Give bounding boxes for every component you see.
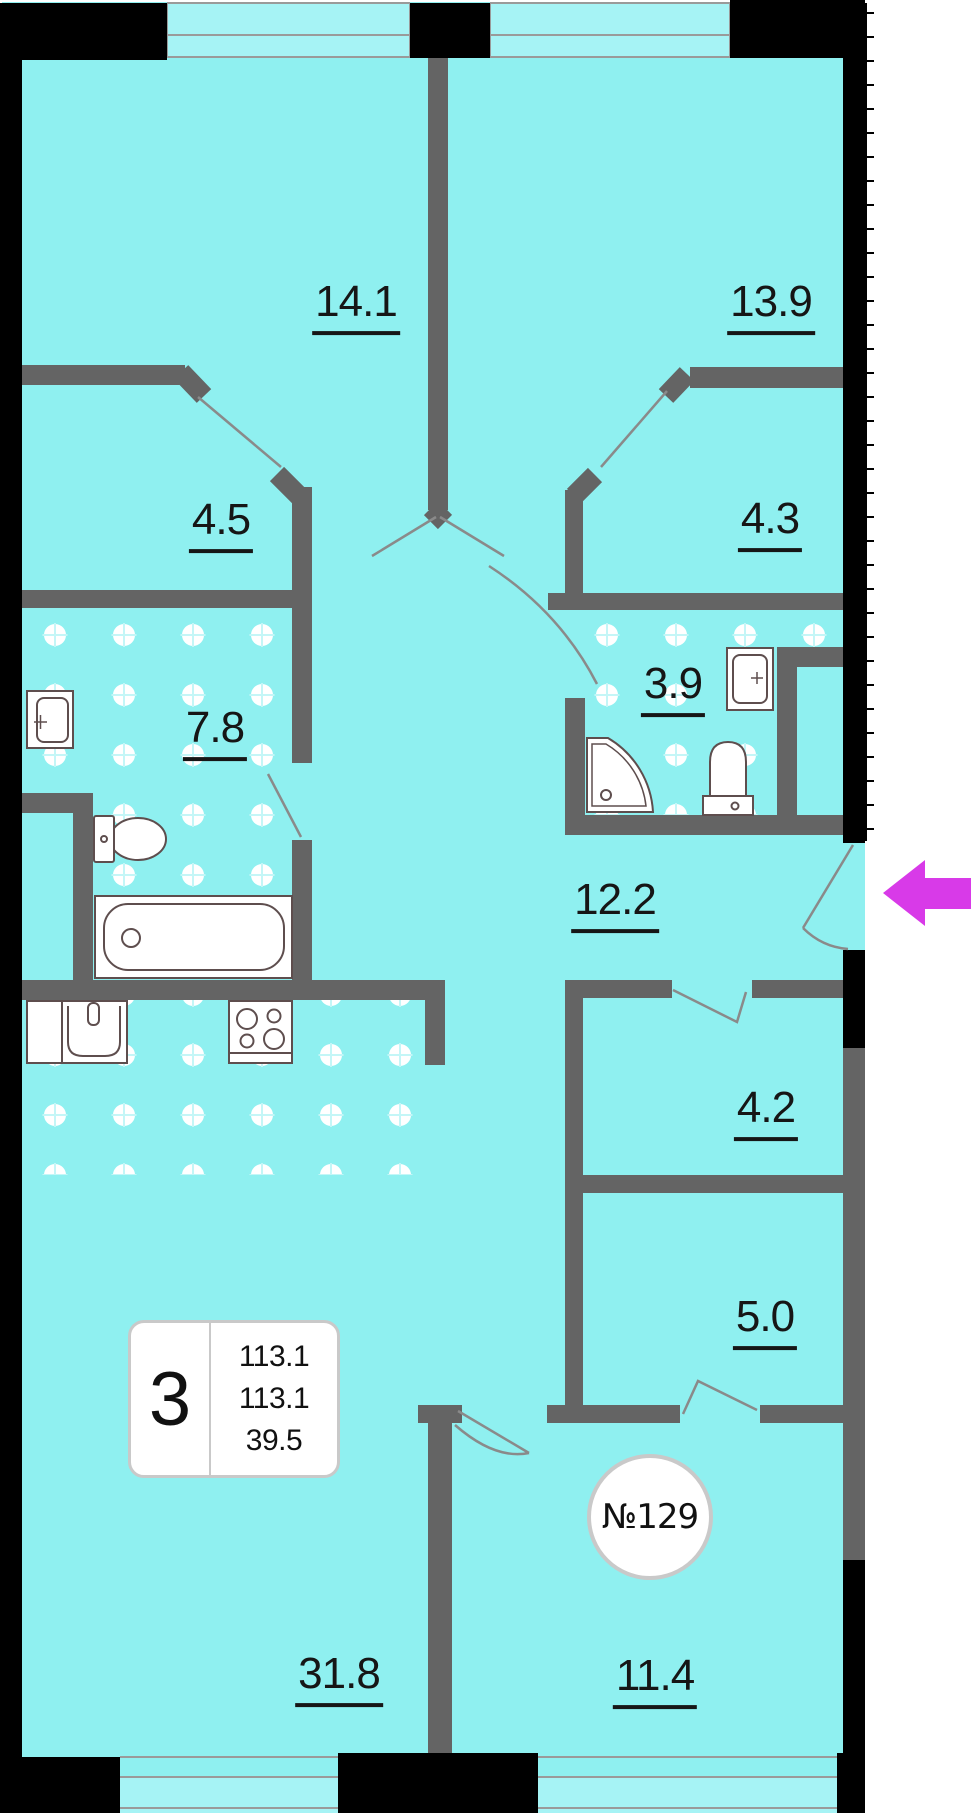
stove-icon (229, 1001, 292, 1063)
area-label-bedroom-top-left: 14.1 (312, 280, 400, 335)
apartment-info-badge: 3 113.1 113.1 39.5 (128, 1320, 340, 1478)
toilet-icon (703, 742, 753, 815)
floor-plan: 14.1 13.9 4.5 4.3 3.9 7.8 12.2 4.2 5.0 3… (0, 0, 971, 1813)
toilet-icon (94, 816, 166, 862)
area-label-bathroom-small: 3.9 (641, 662, 705, 717)
area-reduced: 113.1 (239, 1378, 309, 1420)
washbasin-icon (727, 648, 773, 710)
area-label-closet-left: 4.5 (189, 498, 253, 553)
area-label-hallway: 12.2 (571, 878, 659, 933)
adjacent-wall-ruler (866, 3, 871, 841)
area-label-bedroom-top-right: 13.9 (727, 280, 815, 335)
area-label-bedroom-bottom: 11.4 (613, 1654, 697, 1709)
entrance-arrow-icon (883, 860, 971, 926)
unit-number: №129 (602, 1497, 698, 1537)
area-label-bathroom-large: 7.8 (183, 706, 247, 761)
area-label-closet-right: 4.3 (738, 497, 802, 552)
floor-plan-svg (0, 0, 971, 1813)
unit-number-badge: №129 (587, 1454, 713, 1580)
washbasin-icon (27, 691, 73, 748)
kitchen-sink-icon (27, 1001, 127, 1063)
rooms-count: 3 (131, 1323, 211, 1475)
area-label-wardrobe: 5.0 (733, 1295, 797, 1350)
area-label-storage: 4.2 (734, 1086, 798, 1141)
area-values: 113.1 113.1 39.5 (211, 1323, 337, 1475)
area-label-living-kitchen: 31.8 (295, 1652, 383, 1707)
area-total: 113.1 (239, 1336, 309, 1378)
bathtub-icon (95, 896, 292, 978)
area-living: 39.5 (246, 1420, 302, 1462)
